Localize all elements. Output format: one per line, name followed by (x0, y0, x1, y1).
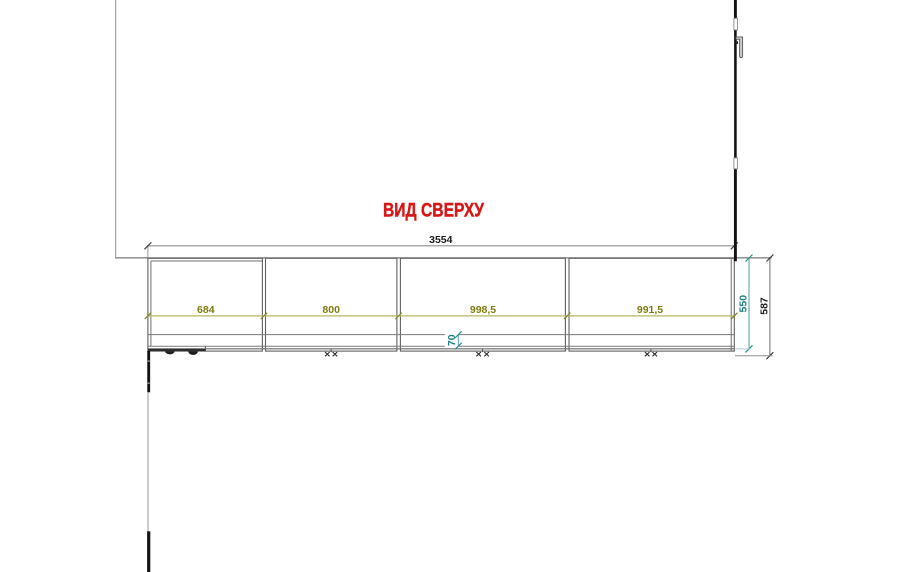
svg-text:991,5: 991,5 (637, 304, 663, 316)
svg-text:550: 550 (737, 295, 749, 313)
svg-text:ВИД СВЕРХУ: ВИД СВЕРХУ (383, 199, 485, 221)
svg-text:684: 684 (197, 304, 215, 316)
svg-text:587: 587 (758, 297, 770, 315)
svg-text:998,5: 998,5 (470, 304, 496, 316)
svg-text:70: 70 (446, 334, 458, 346)
svg-text:800: 800 (322, 304, 340, 316)
svg-text:3554: 3554 (429, 234, 453, 246)
